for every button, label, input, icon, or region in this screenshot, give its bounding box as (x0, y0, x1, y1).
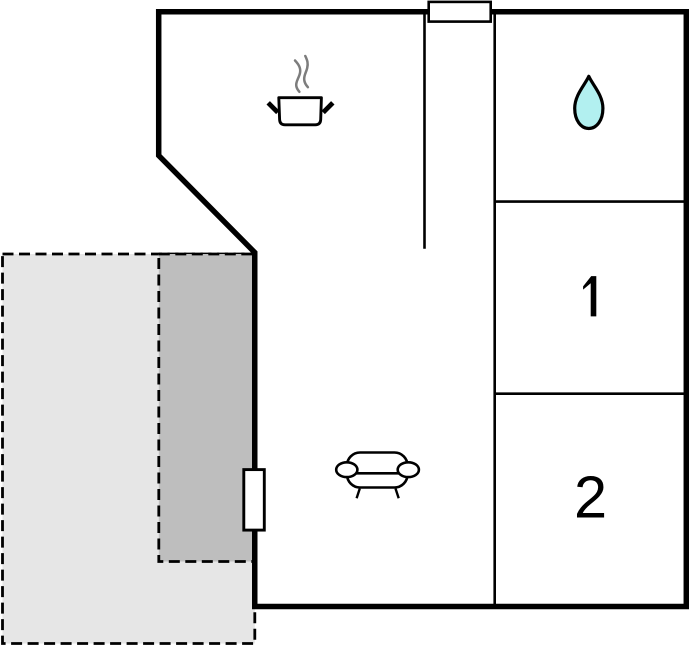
svg-text:2: 2 (574, 464, 607, 531)
